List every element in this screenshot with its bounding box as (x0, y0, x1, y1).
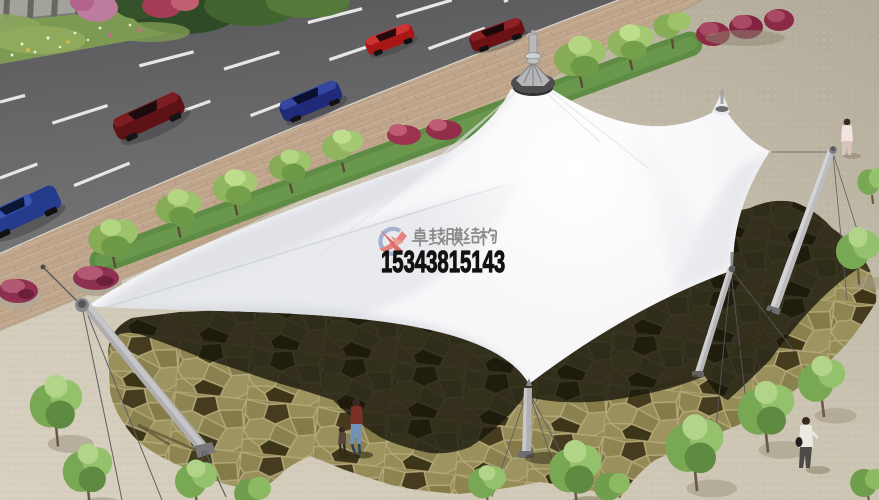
svg-text:15343815143: 15343815143 (381, 244, 505, 279)
